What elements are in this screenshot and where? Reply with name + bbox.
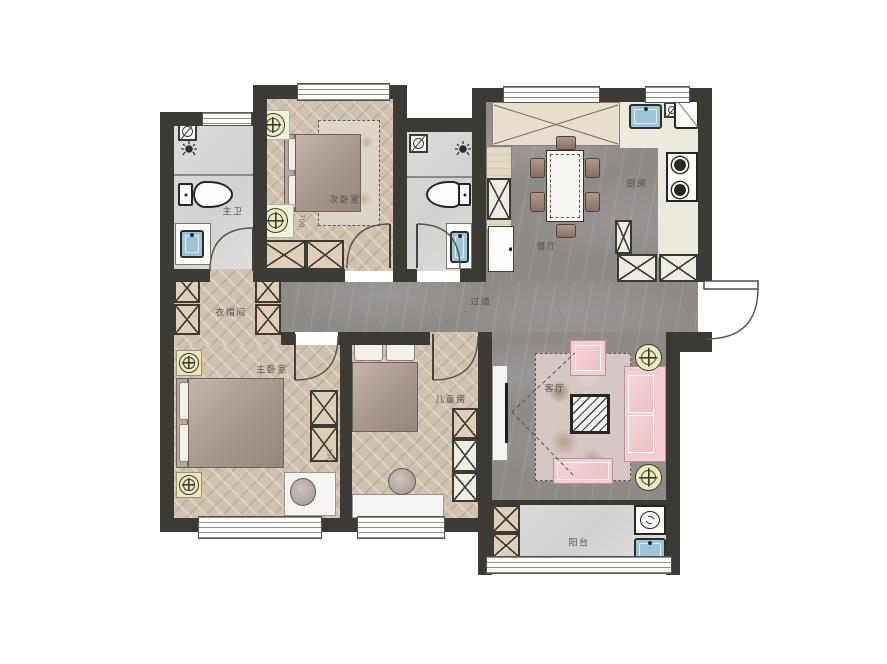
wardrobe-cabinet <box>452 439 478 472</box>
stove-burner <box>674 184 686 196</box>
wall-segment <box>281 332 295 345</box>
dining-chair <box>556 136 576 150</box>
exhaust-fan-icon <box>409 134 428 153</box>
dining-chair <box>530 158 545 178</box>
wardrobe-cabinet <box>310 390 338 426</box>
open-door-leaf <box>488 226 514 272</box>
wall-segment <box>393 269 417 282</box>
window <box>503 86 600 103</box>
wall-segment <box>160 269 210 282</box>
sofa-cushion <box>628 415 654 453</box>
bath-sink <box>450 231 469 263</box>
dining-chair <box>585 158 600 178</box>
stove-burner <box>674 159 686 171</box>
dining-table <box>546 150 584 222</box>
wall-segment <box>478 332 492 575</box>
armchair-cushion <box>575 345 601 371</box>
window <box>297 83 390 101</box>
bay-window <box>198 516 322 539</box>
entry-door-leaf <box>704 281 758 289</box>
armchair <box>570 340 606 376</box>
room-label-cloakroom: 衣帽间 <box>215 306 247 319</box>
toilet-tank <box>458 183 471 206</box>
washing-machine-icon <box>634 505 666 535</box>
wall-segment <box>666 352 680 505</box>
dimension-label: 150 <box>326 448 333 461</box>
door-arc <box>706 288 758 339</box>
dining-chair <box>530 192 545 212</box>
bench <box>553 458 613 484</box>
tall-cabinet-x <box>487 178 511 220</box>
ceiling-lamp-icon <box>635 344 662 371</box>
dining-chair <box>556 224 576 238</box>
balcony-cabinet <box>492 505 520 533</box>
desk <box>352 494 444 518</box>
wardrobe-cabinet <box>174 304 200 335</box>
ceiling-lamp-icon <box>179 475 199 495</box>
wall-segment <box>393 85 407 282</box>
wall-segment <box>255 269 345 282</box>
wall-segment <box>698 88 712 282</box>
wall-segment <box>160 112 174 532</box>
wardrobe-cabinet <box>452 408 478 439</box>
wardrobe-cabinet <box>452 472 478 502</box>
toilet-tank <box>178 183 193 206</box>
double-bed <box>188 378 284 468</box>
dimension-label: 700 <box>298 214 305 227</box>
room-label-kitchen: 厨房 <box>626 177 647 190</box>
room-label-hallway: 过道 <box>470 295 491 308</box>
shower-partition <box>407 176 472 178</box>
room-label-master-bath: 主卫 <box>222 205 243 218</box>
room-label-balcony: 阳台 <box>568 536 589 549</box>
room-label-second-bedroom: 次卧室 <box>329 193 361 206</box>
dining-chair <box>585 192 600 212</box>
room-label-master-bedroom: 主卧室 <box>256 363 288 376</box>
wardrobe-cabinet <box>255 304 281 335</box>
ceiling-lamp-icon <box>635 464 662 491</box>
wardrobe-cabinet <box>306 240 344 270</box>
single-bed <box>352 362 418 432</box>
desk-chair <box>290 478 316 506</box>
wardrobe-cabinet <box>310 426 338 462</box>
window <box>645 86 690 103</box>
balcony-cabinet <box>492 533 520 558</box>
wardrobe-cabinet <box>262 240 306 270</box>
wall-segment <box>253 85 267 282</box>
bench-cushion <box>557 462 609 480</box>
wall-segment <box>472 88 486 282</box>
balcony-window <box>486 556 672 574</box>
bath-sink <box>180 230 204 258</box>
wall-segment <box>492 500 666 505</box>
ceiling-lamp-icon <box>179 353 199 373</box>
tv-screen <box>505 383 508 443</box>
shower-partition <box>174 174 253 176</box>
kitchen-sink <box>629 104 662 129</box>
bay-window <box>357 516 445 539</box>
kitchen-cabinet <box>617 254 657 282</box>
wall-segment <box>340 332 352 532</box>
floor-plan: 主卫 次卧室 餐厅 厨房 过道 衣帽间 主卧室 儿童房 客厅 阳台 700 15… <box>0 0 887 664</box>
wall-segment <box>460 269 486 282</box>
fridge <box>674 100 699 129</box>
window <box>202 112 252 126</box>
room-label-kids-room: 儿童房 <box>435 393 467 406</box>
sofa <box>624 366 666 462</box>
sofa-cushion <box>628 375 654 413</box>
kitchen-cabinet <box>659 254 698 282</box>
wall-segment <box>666 332 712 352</box>
room-label-living: 客厅 <box>544 382 565 395</box>
room-label-dining: 餐厅 <box>536 240 557 253</box>
coffee-table <box>570 394 610 434</box>
desk-chair <box>388 468 416 495</box>
kitchen-cabinet <box>615 220 632 254</box>
